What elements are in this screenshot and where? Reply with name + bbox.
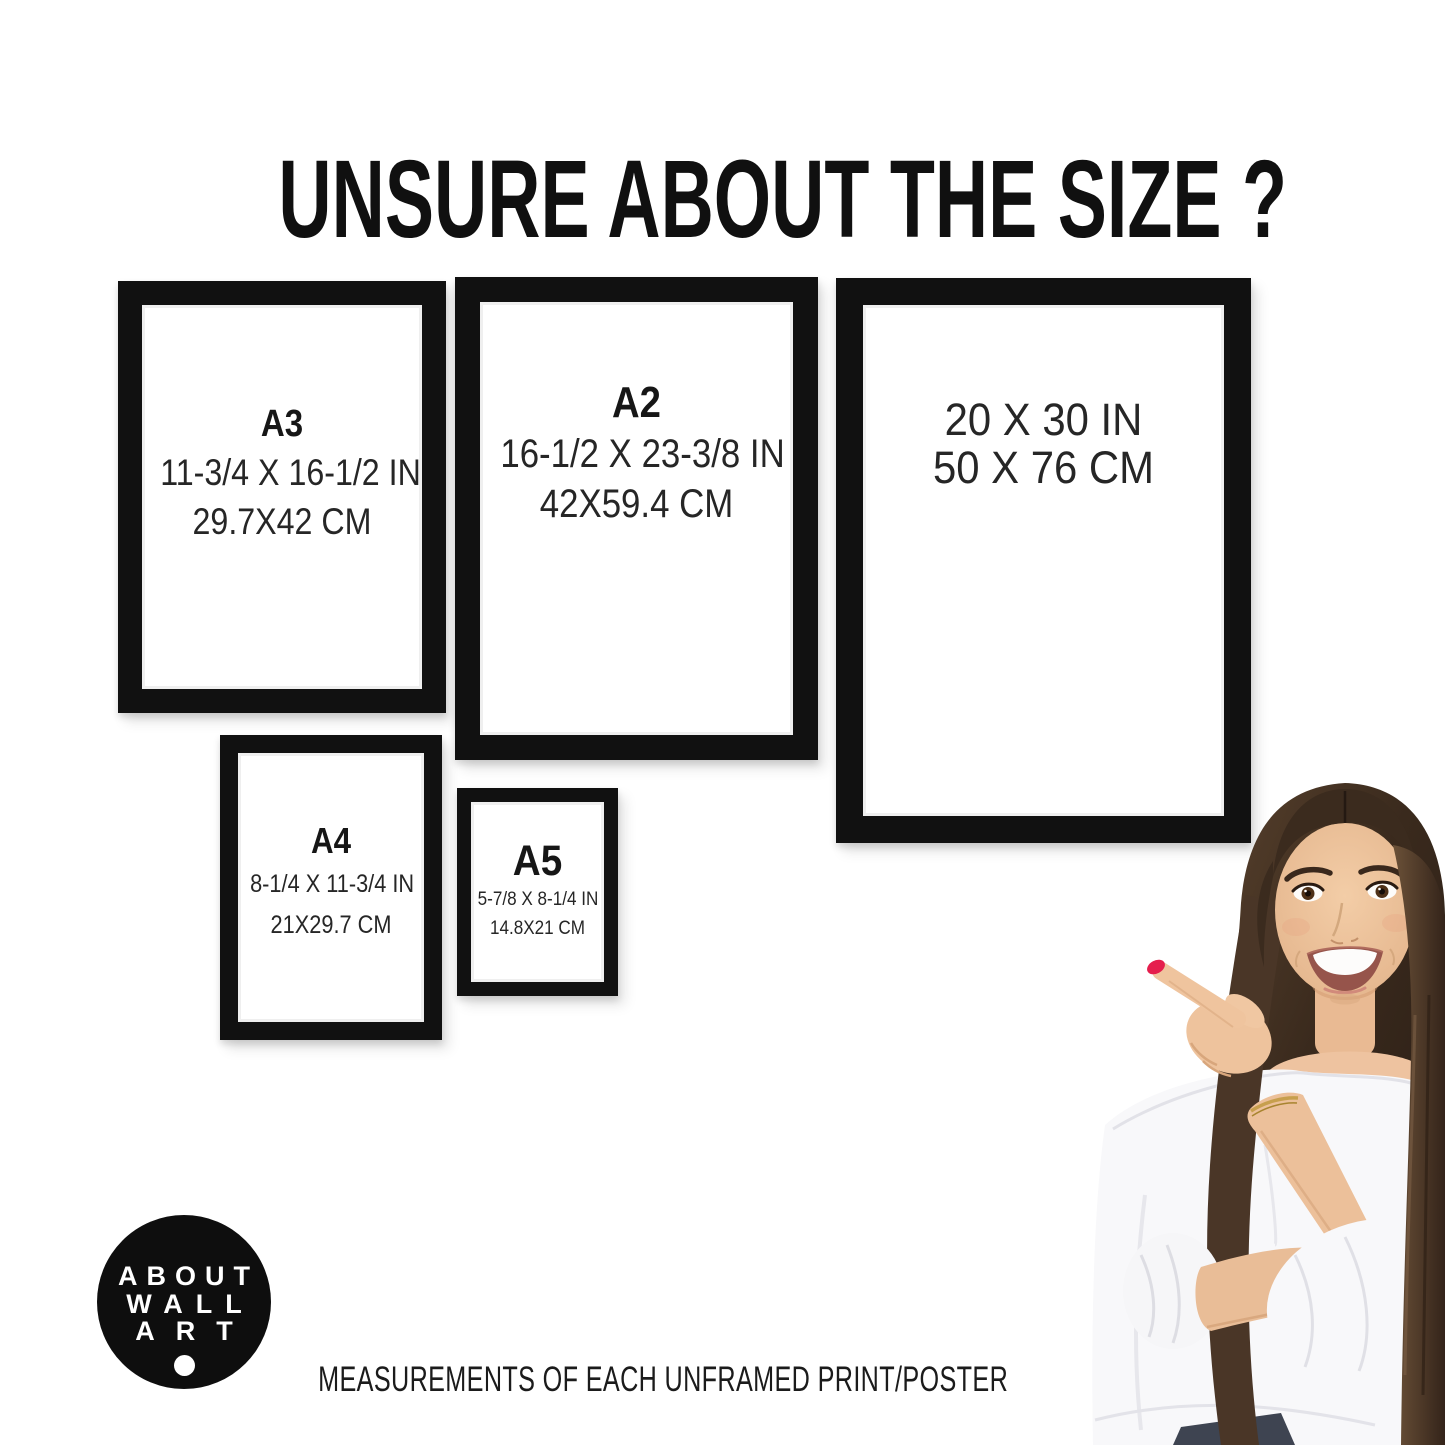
page-title-text: UNSURE ABOUT THE SIZE ? bbox=[278, 144, 1287, 256]
size-label: A3 bbox=[160, 400, 404, 448]
footer-caption-text: MEASUREMENTS OF EACH UNFRAMED PRINT/POST… bbox=[319, 1361, 1009, 1399]
size-frame-20x30: 20 X 30 IN 50 X 76 CM bbox=[836, 278, 1251, 843]
size-inches: 11-3/4 X 16-1/2 IN bbox=[160, 448, 404, 497]
size-frame-a3: A3 11-3/4 X 16-1/2 IN 29.7X42 CM bbox=[118, 281, 446, 713]
size-frame-a4: A4 8-1/4 X 11-3/4 IN 21X29.7 CM bbox=[220, 735, 442, 1040]
size-frame-a2-text: A2 16-1/2 X 23-3/8 IN 42X59.4 CM bbox=[500, 377, 772, 529]
size-inches: 8-1/4 X 11-3/4 IN bbox=[250, 864, 412, 905]
size-cm: 14.8X21 CM bbox=[478, 914, 598, 943]
model-illustration bbox=[945, 775, 1445, 1445]
size-frame-a2: A2 16-1/2 X 23-3/8 IN 42X59.4 CM bbox=[455, 277, 818, 760]
size-guide-poster: UNSURE ABOUT THE SIZE ? A3 11-3/4 X 16-1… bbox=[0, 0, 1445, 1445]
size-cm: 21X29.7 CM bbox=[250, 905, 412, 946]
size-label: A4 bbox=[250, 818, 412, 864]
size-inches: 5-7/8 X 8-1/4 IN bbox=[478, 885, 598, 914]
page-title: UNSURE ABOUT THE SIZE ? bbox=[0, 144, 1445, 256]
size-frame-a3-text: A3 11-3/4 X 16-1/2 IN 29.7X42 CM bbox=[160, 400, 404, 546]
logo-line: ART bbox=[135, 1318, 254, 1346]
size-cm: 29.7X42 CM bbox=[160, 497, 404, 546]
size-frame-a4-text: A4 8-1/4 X 11-3/4 IN 21X29.7 CM bbox=[250, 818, 412, 946]
logo-line: WALL bbox=[126, 1291, 254, 1319]
logo-line: ABOUT bbox=[118, 1263, 259, 1291]
size-frame-20x30-text: 20 X 30 IN 50 X 76 CM bbox=[876, 396, 1212, 492]
size-cm: 42X59.4 CM bbox=[500, 479, 772, 529]
size-label: A2 bbox=[500, 377, 772, 429]
size-cm: 50 X 76 CM bbox=[876, 444, 1212, 492]
size-inches: 20 X 30 IN bbox=[876, 396, 1212, 444]
size-label: A5 bbox=[478, 838, 598, 885]
size-inches: 16-1/2 X 23-3/8 IN bbox=[500, 429, 772, 479]
size-frame-a5-text: A5 5-7/8 X 8-1/4 IN 14.8X21 CM bbox=[478, 838, 598, 943]
size-frame-a5: A5 5-7/8 X 8-1/4 IN 14.8X21 CM bbox=[457, 788, 618, 996]
